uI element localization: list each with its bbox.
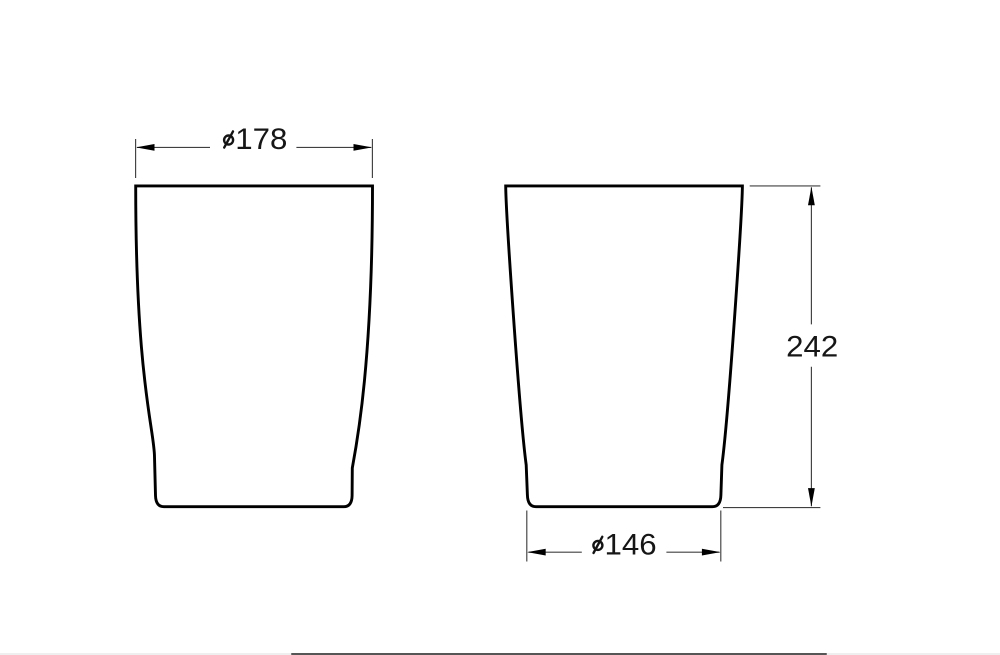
svg-text:178: 178 bbox=[235, 124, 287, 156]
svg-text:242: 242 bbox=[786, 331, 838, 363]
svg-text:146: 146 bbox=[605, 529, 657, 561]
